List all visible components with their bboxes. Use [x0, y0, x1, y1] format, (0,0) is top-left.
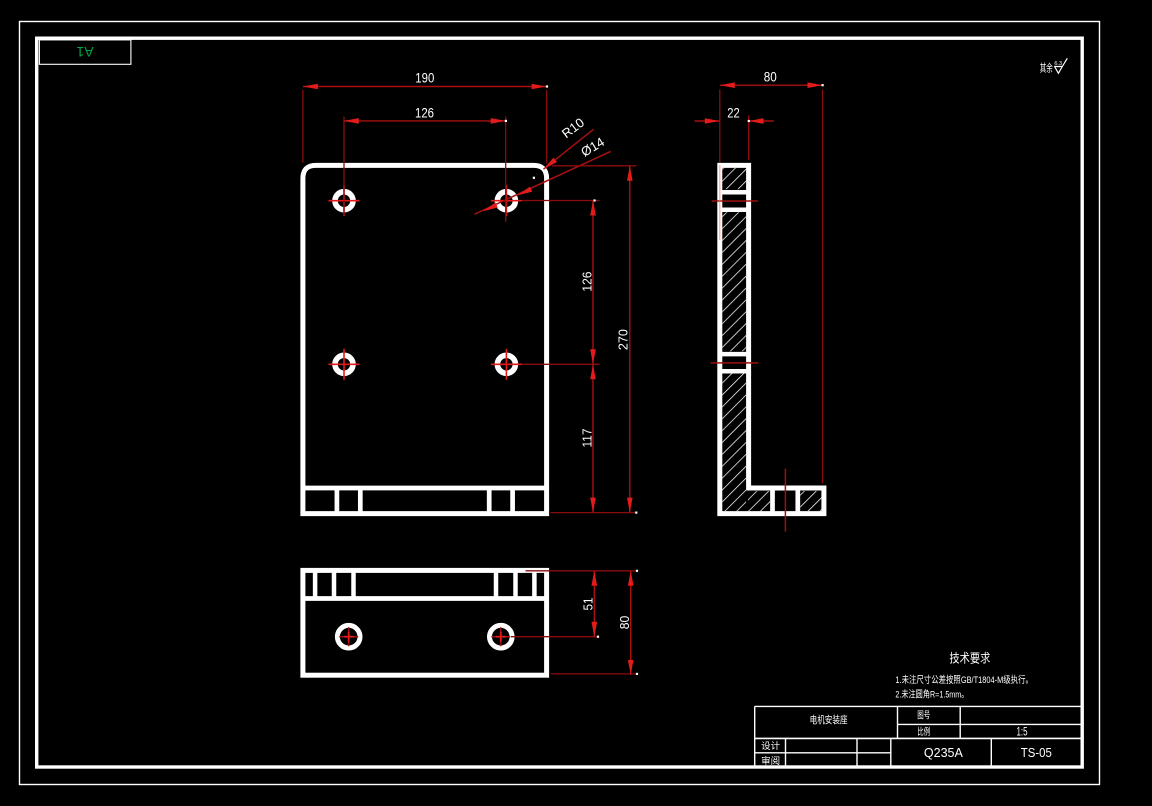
- svg-text:80: 80: [764, 70, 777, 85]
- svg-text:126: 126: [579, 272, 594, 292]
- svg-text:Q235A: Q235A: [924, 745, 963, 760]
- svg-text:图号: 图号: [917, 710, 930, 721]
- svg-text:117: 117: [579, 429, 594, 448]
- svg-text:电机安装座: 电机安装座: [810, 713, 848, 726]
- svg-text:设计: 设计: [761, 740, 780, 751]
- svg-text:TS-05: TS-05: [1021, 745, 1052, 760]
- svg-text:6.3: 6.3: [1054, 61, 1062, 67]
- svg-text:126: 126: [415, 105, 434, 120]
- svg-text:其余: 其余: [1040, 62, 1053, 75]
- svg-text:51: 51: [581, 598, 596, 611]
- svg-text:190: 190: [415, 70, 434, 85]
- svg-text:270: 270: [615, 329, 630, 350]
- svg-text:22: 22: [727, 105, 740, 120]
- svg-text:审阅: 审阅: [761, 755, 780, 766]
- svg-text:80: 80: [617, 616, 632, 630]
- svg-text:A1: A1: [76, 44, 93, 60]
- svg-text:技术要求: 技术要求: [949, 652, 990, 666]
- svg-text:1:5: 1:5: [1017, 726, 1028, 738]
- svg-text:比例: 比例: [917, 726, 930, 738]
- svg-text:1.未注尺寸公差按照GB/T1804-M级执行。: 1.未注尺寸公差按照GB/T1804-M级执行。: [895, 674, 1033, 686]
- svg-text:2.未注圆角R=1.5mm。: 2.未注圆角R=1.5mm。: [895, 688, 968, 700]
